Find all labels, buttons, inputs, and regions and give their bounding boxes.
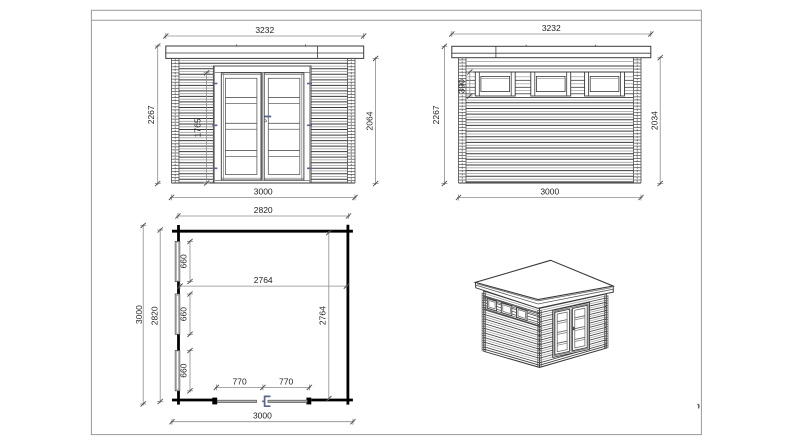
svg-text:660: 660	[179, 307, 189, 321]
svg-text:770: 770	[279, 376, 293, 386]
svg-text:2820: 2820	[254, 205, 273, 215]
svg-text:3000: 3000	[254, 186, 273, 196]
svg-text:1765: 1765	[193, 118, 203, 137]
svg-text:660: 660	[179, 254, 189, 268]
svg-text:390: 390	[456, 79, 466, 93]
svg-text:3000: 3000	[540, 187, 559, 197]
svg-text:3232: 3232	[542, 23, 561, 33]
svg-text:2764: 2764	[254, 275, 273, 285]
svg-text:2034: 2034	[650, 111, 660, 130]
svg-text:2267: 2267	[431, 105, 441, 124]
svg-text:2064: 2064	[365, 111, 375, 130]
svg-text:3232: 3232	[255, 25, 274, 35]
svg-text:2764: 2764	[318, 306, 328, 325]
svg-text:770: 770	[233, 376, 247, 386]
svg-text:660: 660	[179, 363, 189, 377]
svg-text:3000: 3000	[253, 411, 272, 421]
svg-text:2267: 2267	[146, 105, 156, 124]
svg-text:2820: 2820	[150, 306, 160, 325]
svg-text:3000: 3000	[134, 305, 144, 324]
